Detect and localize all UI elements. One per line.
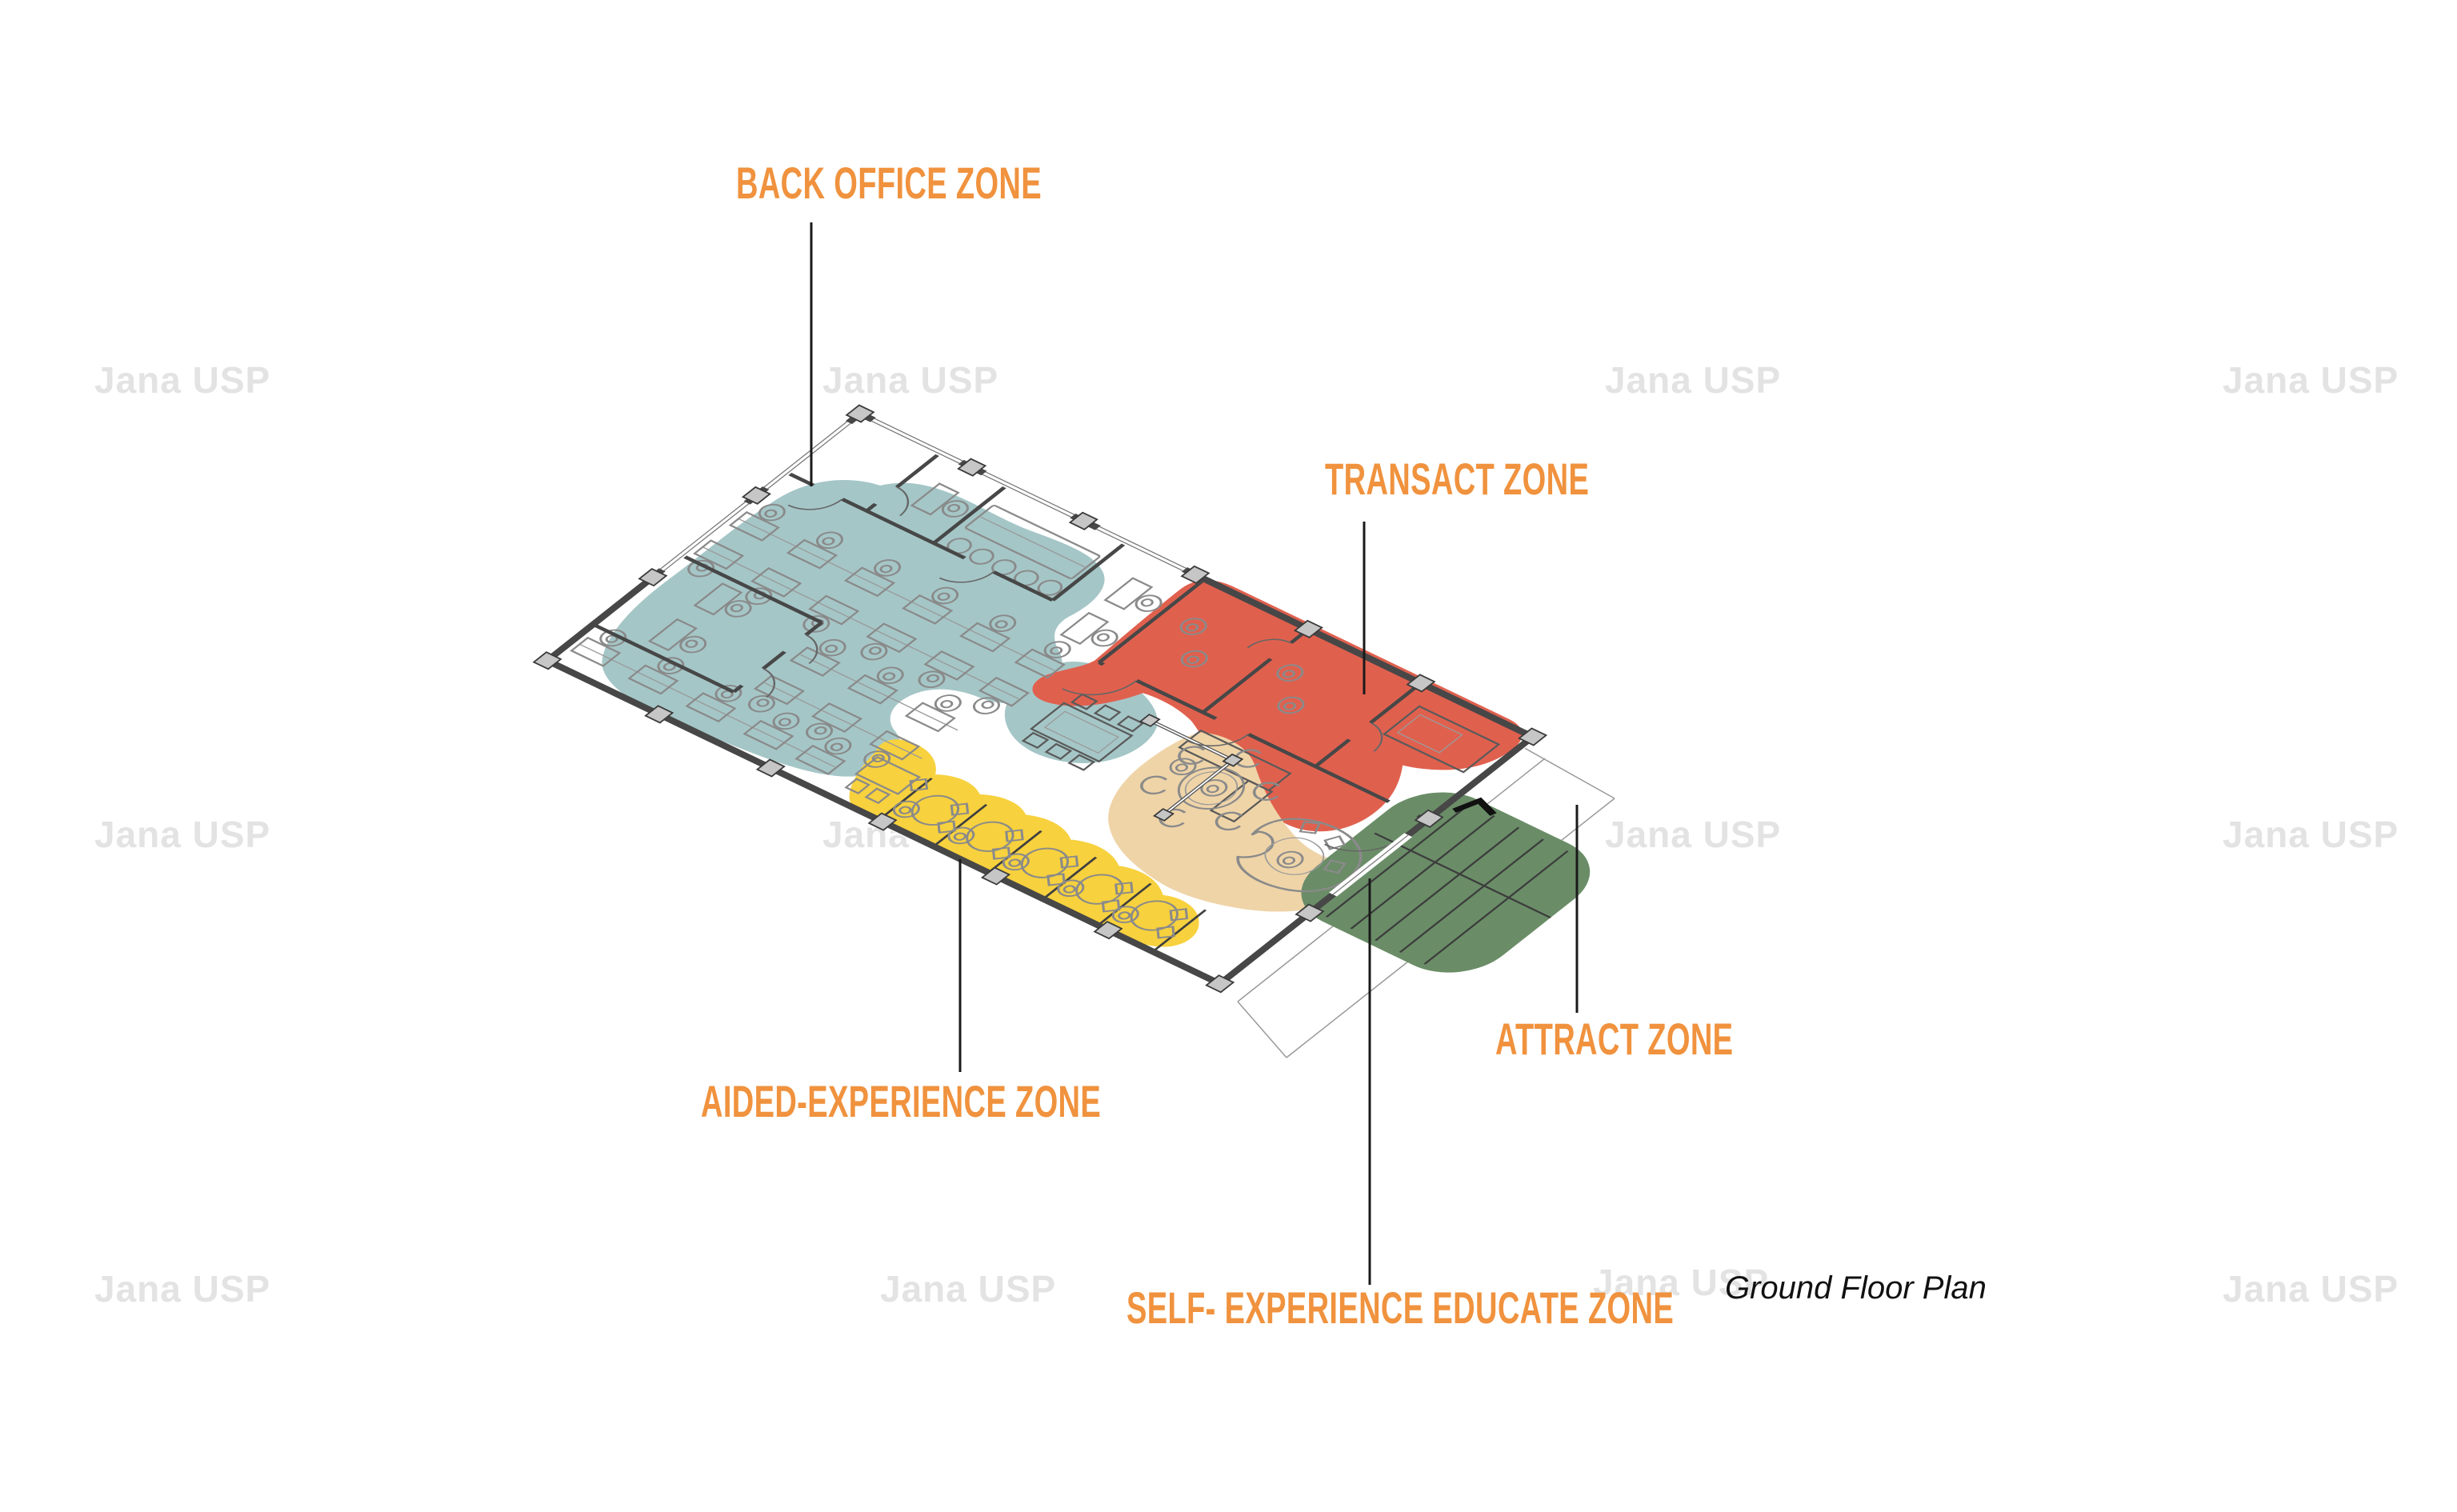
label-back-office-zone: BACK OFFICE ZONE xyxy=(736,157,1042,209)
caption-ground-floor-plan: Ground Floor Plan xyxy=(1725,1270,1987,1306)
label-self-experience-educate-zone: SELF- EXPERIENCE EDUCATE ZONE xyxy=(1126,1282,1674,1334)
diagram-page: { "caption": { "text": "Ground Floor Pla… xyxy=(0,0,2457,1512)
label-attract-zone: ATTRACT ZONE xyxy=(1495,1013,1733,1065)
label-transact-zone: TRANSACT ZONE xyxy=(1325,453,1589,505)
label-aided-experience-zone: AIDED-EXPERIENCE ZONE xyxy=(701,1075,1101,1127)
